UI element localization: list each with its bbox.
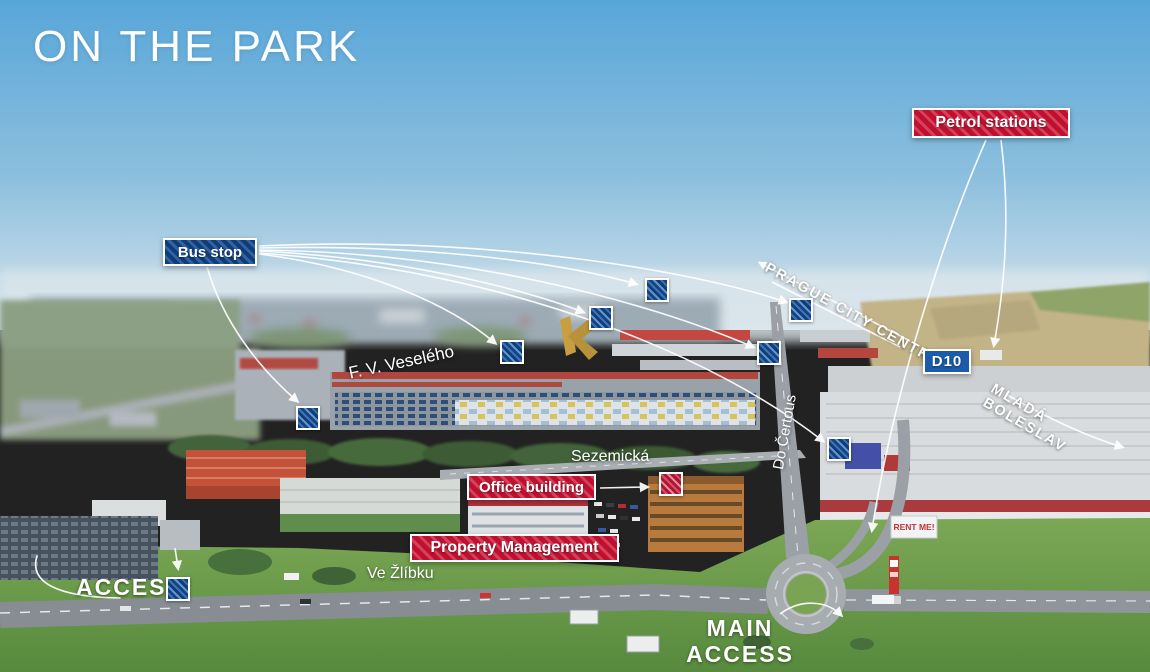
marker-access: [166, 577, 190, 601]
marker-bus-stop-7: [827, 437, 851, 461]
page-title: ON THE PARK: [33, 22, 360, 72]
marker-bus-stop-4: [645, 278, 669, 302]
marker-bus-stop-1: [296, 406, 320, 430]
marker-bus-stop-5: [789, 298, 813, 322]
rent-me-billboard: RENT ME!: [891, 516, 937, 538]
marker-bus-stop-3: [589, 306, 613, 330]
sign-d10: D10: [923, 349, 971, 374]
street-ve-zlibku: Ve Žlíbku: [367, 565, 434, 583]
label-petrol-stations: Petrol stations: [912, 108, 1070, 138]
street-sezemicka: Sezemická: [571, 448, 649, 466]
left-fields: [0, 300, 260, 440]
aerial-photo-background: RENT ME!: [0, 0, 1150, 672]
marker-bus-stop-6: [757, 341, 781, 365]
park-aerial-map: RENT ME!: [0, 0, 1150, 672]
text-main: MAIN: [675, 615, 805, 641]
text-access-2: ACCESS: [675, 641, 805, 667]
text-main-access: MAIN ACCESS: [675, 615, 805, 667]
label-bus-stop: Bus stop: [163, 238, 257, 266]
label-office-building: Office building: [467, 474, 596, 500]
label-property-management: Property Management: [410, 534, 619, 562]
marker-bus-stop-2: [500, 340, 524, 364]
petrol-station-pylon: [889, 556, 899, 594]
rent-me-text: RENT ME!: [893, 522, 934, 532]
marker-office-building: [659, 472, 683, 496]
